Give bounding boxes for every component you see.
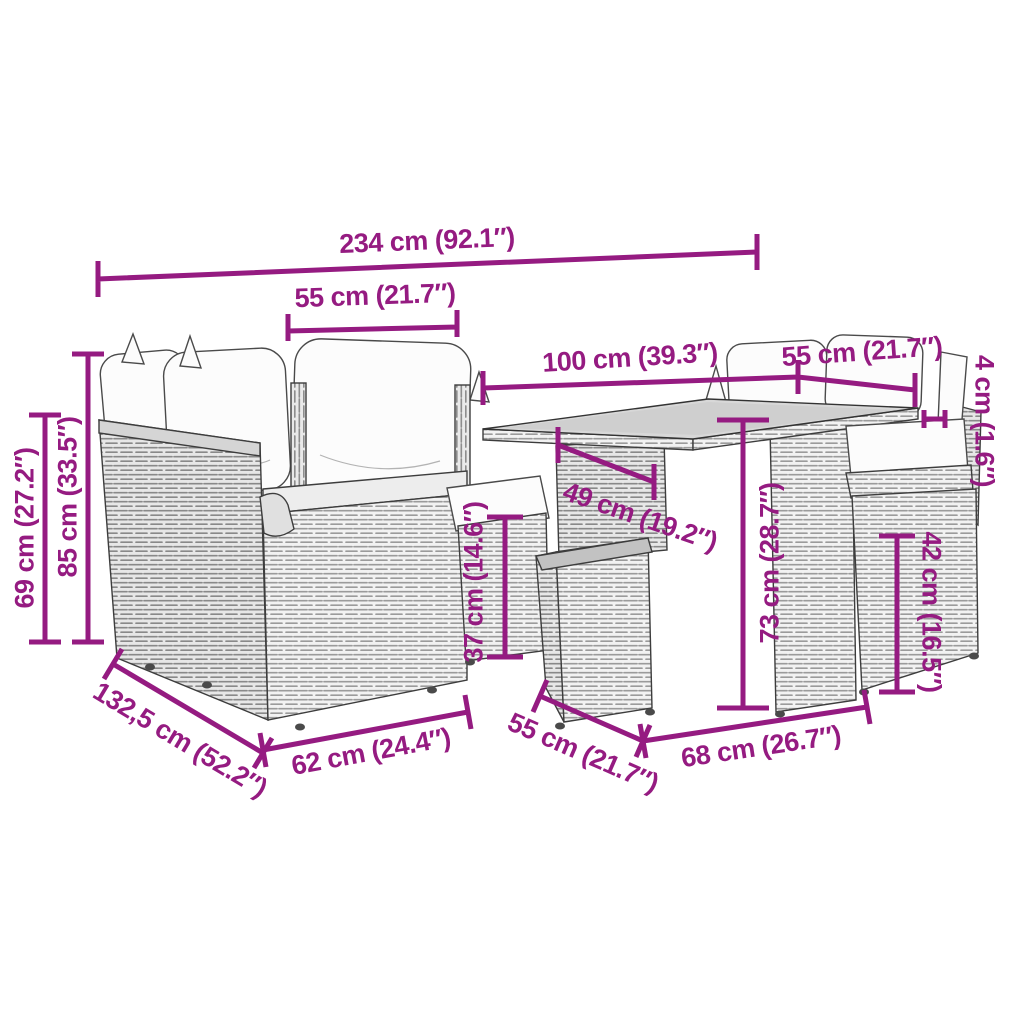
dim-line-stool-height <box>487 517 523 657</box>
dim-label-left-seat-width: 55 cm (21.7″) <box>294 278 456 315</box>
dim-bracket-tabletop-thickness <box>924 410 945 428</box>
dim-label-total-height: 85 cm (33.5″) <box>53 416 84 577</box>
dim-label-tabletop-thickness: 4 cm (1.6″) <box>969 355 1000 487</box>
dim-label-table-height: 73 cm (28.7″) <box>755 482 786 643</box>
dimension-lines <box>0 0 1024 1024</box>
dim-label-base-height: 42 cm (16.5″) <box>916 531 947 692</box>
dim-label-stool-height: 37 cm (14.6″) <box>459 501 490 662</box>
dim-label-back-height: 69 cm (27.2″) <box>10 447 41 608</box>
dim-line-base-height <box>879 536 915 692</box>
dim-line-left-seat-width <box>288 310 457 341</box>
dimension-diagram: 234 cm (92.1″) 55 cm (21.7″) 100 cm (39.… <box>0 0 1024 1024</box>
